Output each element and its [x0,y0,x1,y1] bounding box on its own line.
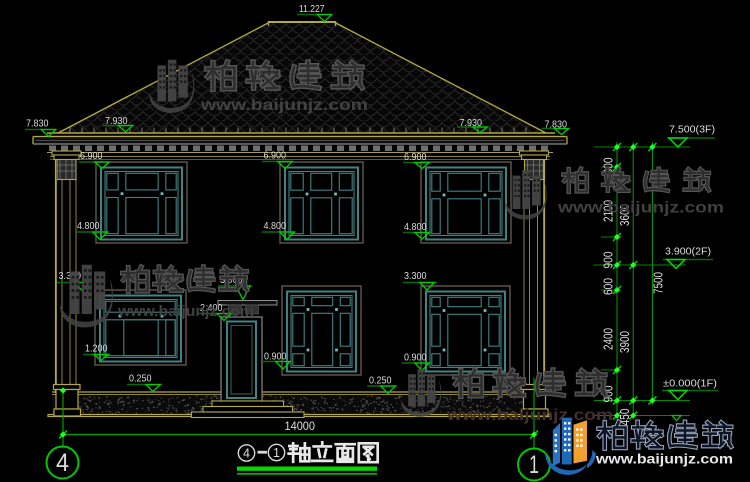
svg-text:7.830: 7.830 [26,118,49,130]
svg-text:www.baijunjz.com: www.baijunjz.com [117,303,254,320]
svg-text:3.900(2F): 3.900(2F) [665,246,711,258]
svg-text:14000: 14000 [285,419,316,433]
svg-text:www.baijunjz.com: www.baijunjz.com [446,407,613,424]
svg-text:4.800: 4.800 [404,221,427,233]
svg-text:4: 4 [56,449,69,477]
svg-text:4.800: 4.800 [264,220,287,232]
svg-text:3900: 3900 [617,331,632,353]
svg-text:7500: 7500 [651,272,666,294]
svg-text:www.baijunjz.com: www.baijunjz.com [557,200,724,217]
svg-text:1: 1 [529,451,539,479]
svg-text:4: 4 [243,447,250,461]
svg-text:6.900: 6.900 [80,150,103,162]
svg-text:±0.000(1F): ±0.000(1F) [663,378,717,390]
svg-text:0.250: 0.250 [369,375,392,387]
svg-text:3.300: 3.300 [404,270,427,282]
svg-text:7.500(3F): 7.500(3F) [669,124,715,136]
svg-text:11.227: 11.227 [299,3,325,15]
svg-text:0.900: 0.900 [264,351,287,363]
svg-text:1.200: 1.200 [85,343,108,355]
svg-text:1: 1 [273,446,280,460]
svg-text:www.baijunjz.com: www.baijunjz.com [200,97,368,114]
svg-text:6.900: 6.900 [404,151,427,163]
svg-text:0.250: 0.250 [129,373,152,385]
svg-text:0.900: 0.900 [404,352,427,364]
svg-text:2400: 2400 [601,328,616,350]
svg-text:www.baijunjz.com: www.baijunjz.com [595,451,733,467]
svg-text:6.900: 6.900 [264,150,287,162]
svg-text:600: 600 [601,278,616,295]
svg-text:900: 900 [601,252,616,269]
svg-text:4.800: 4.800 [77,220,100,232]
